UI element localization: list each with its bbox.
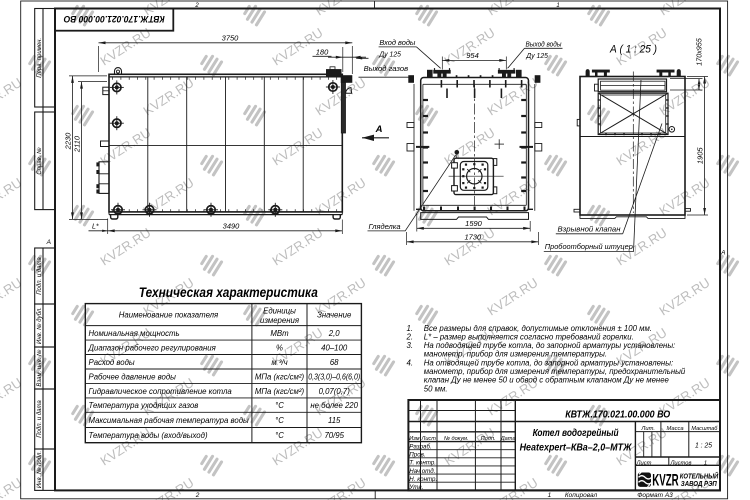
svg-text:180: 180 bbox=[316, 48, 329, 57]
svg-text:Пробоотборный штуцер: Пробоотборный штуцер bbox=[545, 242, 633, 251]
svg-text:3.: 3. bbox=[406, 341, 413, 350]
svg-text:А ( 1 : 25 ): А ( 1 : 25 ) bbox=[609, 44, 657, 56]
svg-text:Выход газов: Выход газов bbox=[364, 64, 409, 73]
svg-text:Единицы: Единицы bbox=[263, 307, 296, 316]
svg-text:3750: 3750 bbox=[222, 33, 240, 42]
svg-text:клапан Ду не менее 50 и обвод: клапан Ду не менее 50 и обвод с обратным… bbox=[424, 376, 670, 385]
svg-text:Ду 125: Ду 125 bbox=[525, 51, 548, 60]
svg-text:Наименование показателя: Наименование показателя bbox=[119, 311, 219, 320]
svg-text:1590: 1590 bbox=[465, 219, 483, 228]
svg-text:Максимальная рабочая температу: Максимальная рабочая температура воды bbox=[89, 416, 250, 425]
svg-text:Справ. №: Справ. № bbox=[36, 147, 43, 175]
svg-text:Масса: Масса bbox=[667, 426, 685, 432]
svg-text:Расход воды: Расход воды bbox=[89, 358, 135, 367]
svg-text:Диапазон рабочего регулировани: Диапазон рабочего регулирования bbox=[88, 344, 217, 353]
svg-text:Утв.: Утв. bbox=[408, 484, 423, 491]
svg-text:2,0: 2,0 bbox=[328, 329, 341, 338]
svg-text:1730: 1730 bbox=[464, 232, 482, 241]
svg-text:Нач.отд.: Нач.отд. bbox=[409, 468, 435, 475]
svg-text:не более 220: не более 220 bbox=[310, 401, 358, 410]
svg-text:МПа (кгс/см²): МПа (кгс/см²) bbox=[255, 372, 305, 381]
svg-text:А: А bbox=[46, 239, 51, 246]
svg-text:1: 1 bbox=[704, 460, 707, 466]
svg-text:115: 115 bbox=[328, 416, 341, 425]
svg-text:2: 2 bbox=[195, 492, 200, 499]
svg-text:м ³/ч: м ³/ч bbox=[271, 358, 287, 367]
svg-text:МПа (кгс/см²): МПа (кгс/см²) bbox=[255, 387, 305, 396]
svg-text:1: 1 bbox=[548, 492, 552, 499]
svg-text:Котел водогрейный: Котел водогрейный bbox=[533, 428, 619, 439]
svg-text:Температура уходящих газов: Температура уходящих газов bbox=[89, 401, 199, 410]
svg-text:4.: 4. bbox=[406, 358, 413, 367]
svg-text:1 : 25: 1 : 25 bbox=[695, 441, 713, 450]
svg-text:Листов: Листов bbox=[669, 460, 691, 466]
svg-text:№ докум.: № докум. bbox=[444, 436, 469, 442]
svg-text:Н. контр.: Н. контр. bbox=[409, 476, 437, 483]
svg-text:Перв. примен.: Перв. примен. bbox=[37, 38, 43, 78]
svg-text:Масштаб: Масштаб bbox=[691, 426, 718, 432]
svg-text:2230: 2230 bbox=[63, 132, 72, 151]
svg-text:Взам. инв. №: Взам. инв. № bbox=[36, 349, 43, 387]
svg-text:Ду 125: Ду 125 bbox=[378, 50, 401, 59]
svg-text:1905: 1905 bbox=[695, 147, 704, 165]
svg-text:Пров.: Пров. bbox=[409, 452, 425, 459]
svg-text:KVZR: KVZR bbox=[652, 472, 679, 490]
svg-text:954: 954 bbox=[466, 51, 479, 60]
svg-text:0,3(3,0)–0,6(6,0): 0,3(3,0)–0,6(6,0) bbox=[308, 372, 360, 381]
svg-text:0,07(0,7): 0,07(0,7) bbox=[319, 387, 351, 396]
svg-text:Значение: Значение bbox=[317, 311, 352, 320]
svg-text:40–100: 40–100 bbox=[321, 344, 348, 353]
svg-text:ЗАВОД РЭП: ЗАВОД РЭП bbox=[681, 481, 718, 488]
svg-text:А: А bbox=[720, 250, 725, 257]
svg-text:2: 2 bbox=[194, 3, 199, 9]
svg-text:А: А bbox=[375, 124, 383, 135]
svg-text:Подп. и дата: Подп. и дата bbox=[37, 257, 43, 295]
svg-text:50 мм.: 50 мм. bbox=[424, 385, 448, 394]
svg-text:2110: 2110 bbox=[72, 135, 81, 153]
svg-text:68: 68 bbox=[330, 358, 339, 367]
svg-text:МВт: МВт bbox=[270, 329, 289, 338]
svg-text:Формат А3: Формат А3 bbox=[637, 492, 673, 499]
svg-text:Номинальная мощность: Номинальная мощность bbox=[89, 329, 180, 338]
svg-text:Выход воды: Выход воды bbox=[526, 39, 562, 48]
svg-text:L* – размер выполняется соглас: L* – размер выполняется согласно требова… bbox=[424, 332, 634, 341]
svg-text:2.: 2. bbox=[405, 332, 413, 341]
svg-text:Дата: Дата bbox=[500, 436, 516, 442]
svg-text:Инв. № дубл.: Инв. № дубл. bbox=[36, 307, 43, 344]
svg-text:Разраб.: Разраб. bbox=[409, 444, 431, 451]
svg-text:3490: 3490 bbox=[223, 221, 241, 230]
svg-text:Вход воды: Вход воды bbox=[379, 38, 415, 47]
svg-text:Лист: Лист bbox=[636, 460, 652, 466]
svg-text:L*: L* bbox=[92, 223, 99, 230]
svg-text:%: % bbox=[276, 344, 283, 353]
svg-text:Взрывной клапан: Взрывной клапан bbox=[558, 225, 621, 234]
svg-text:°С: °С bbox=[275, 416, 284, 425]
svg-text:170х955: 170х955 bbox=[695, 37, 704, 66]
svg-text:Т. контр.: Т. контр. bbox=[409, 460, 436, 467]
svg-text:1: 1 bbox=[556, 3, 559, 9]
svg-text:Изм: Изм bbox=[409, 436, 420, 442]
svg-text:манометр, прибор для измерения: манометр, прибор для измерения температу… bbox=[424, 350, 607, 359]
svg-text:Лит.: Лит. bbox=[640, 426, 655, 432]
svg-text:Подп.: Подп. bbox=[481, 436, 496, 442]
svg-text:Лист: Лист bbox=[420, 436, 436, 442]
svg-text:Подп. и дата: Подп. и дата bbox=[37, 400, 43, 438]
svg-text:КВТЖ.170.021.00.000 ВО: КВТЖ.170.021.00.000 ВО bbox=[63, 13, 164, 24]
svg-text:Гидравлическое сопротивление к: Гидравлическое сопротивление котла bbox=[89, 387, 233, 396]
svg-text:КОТЕЛЬНЫЙ: КОТЕЛЬНЫЙ bbox=[680, 472, 719, 481]
svg-text:Копировал: Копировал bbox=[565, 492, 598, 499]
svg-text:Heatexpert–КВа–2,0–МТЖ: Heatexpert–КВа–2,0–МТЖ bbox=[520, 443, 633, 454]
svg-text:КВТЖ.170.021.00.000 ВО: КВТЖ.170.021.00.000 ВО bbox=[565, 409, 670, 421]
svg-text:Температура воды (вход/выход): Температура воды (вход/выход) bbox=[89, 431, 208, 440]
svg-text:Рабочее давление воды: Рабочее давление воды bbox=[89, 372, 177, 381]
svg-text:70/95: 70/95 bbox=[324, 431, 344, 440]
svg-text:°С: °С bbox=[275, 431, 284, 440]
svg-text:Инв. № подл.: Инв. № подл. bbox=[36, 451, 43, 488]
svg-text:Гляделка: Гляделка bbox=[369, 222, 401, 231]
svg-text:°С: °С bbox=[275, 401, 284, 410]
svg-text:Техническая характеристика: Техническая характеристика bbox=[139, 285, 318, 300]
svg-text:измерения: измерения bbox=[260, 316, 300, 325]
